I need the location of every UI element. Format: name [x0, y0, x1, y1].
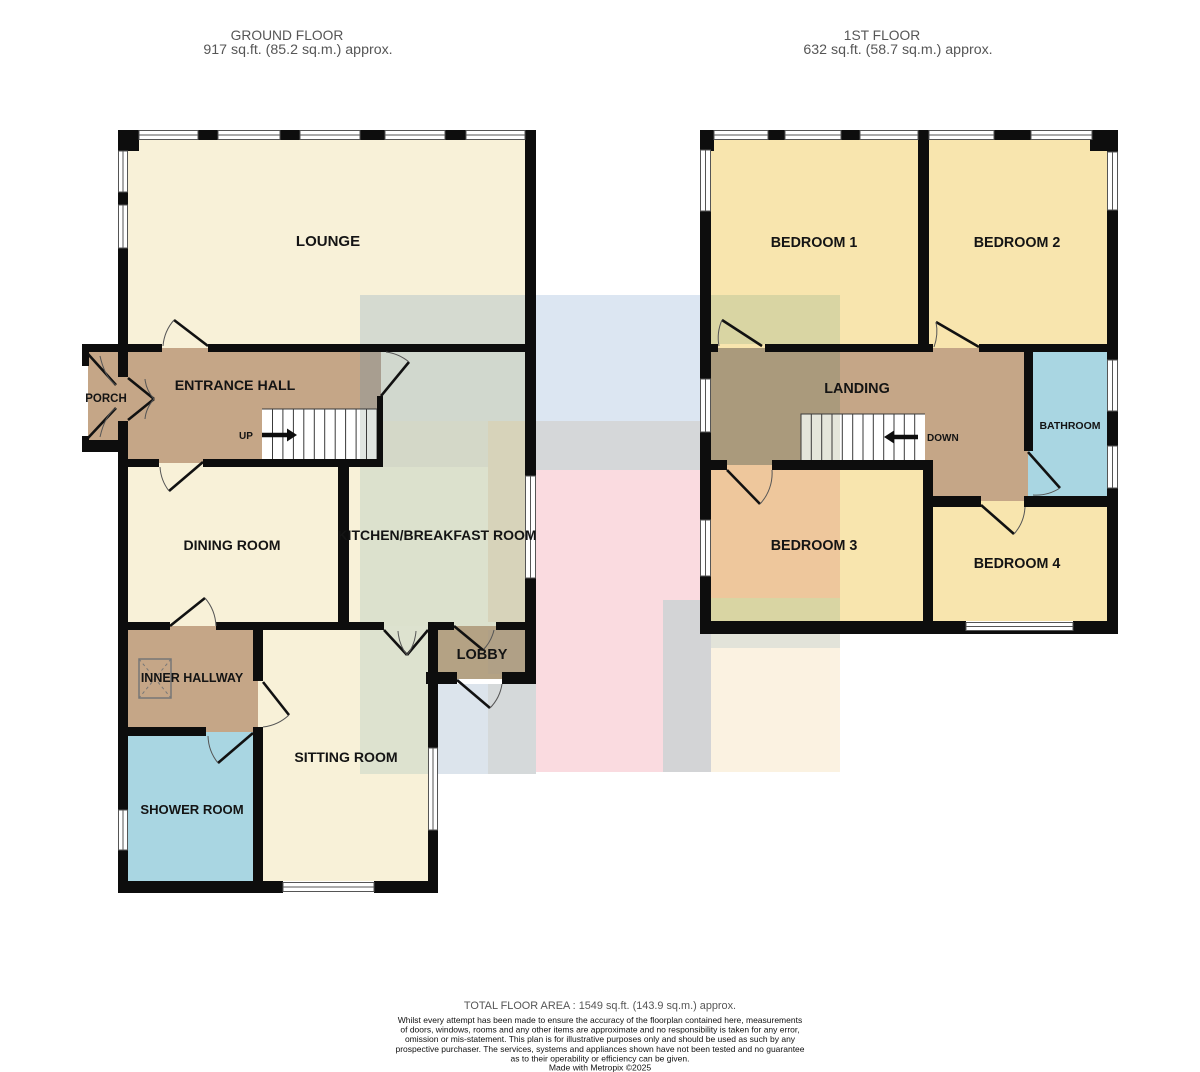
svg-text:BATHROOM: BATHROOM — [1039, 420, 1100, 432]
svg-text:INNER HALLWAY: INNER HALLWAY — [141, 671, 244, 685]
svg-text:omission or mis-statement. Thi: omission or mis-statement. This plan is … — [405, 1034, 796, 1044]
svg-text:LANDING: LANDING — [824, 381, 890, 397]
svg-text:UP: UP — [239, 431, 253, 442]
svg-text:of doors, windows, rooms and a: of doors, windows, rooms and any other i… — [400, 1025, 799, 1035]
svg-text:LOBBY: LOBBY — [457, 647, 508, 663]
svg-text:BEDROOM 4: BEDROOM 4 — [974, 556, 1061, 572]
svg-text:917 sq.ft. (85.2 sq.m.) approx: 917 sq.ft. (85.2 sq.m.) approx. — [203, 42, 392, 58]
svg-text:Made with Metropix ©2025: Made with Metropix ©2025 — [549, 1063, 652, 1072]
svg-text:GROUND FLOOR: GROUND FLOOR — [231, 28, 344, 43]
svg-text:TOTAL FLOOR AREA : 1549 sq.ft.: TOTAL FLOOR AREA : 1549 sq.ft. (143.9 sq… — [464, 1000, 736, 1012]
svg-text:DOWN: DOWN — [927, 433, 959, 444]
svg-text:ENTRANCE HALL: ENTRANCE HALL — [175, 378, 296, 394]
svg-text:BEDROOM 3: BEDROOM 3 — [771, 538, 858, 554]
svg-text:DINING ROOM: DINING ROOM — [183, 537, 280, 553]
svg-text:Whilst every attempt has been: Whilst every attempt has been made to en… — [398, 1015, 802, 1025]
svg-text:632 sq.ft. (58.7 sq.m.) approx: 632 sq.ft. (58.7 sq.m.) approx. — [803, 42, 992, 58]
svg-text:BEDROOM 1: BEDROOM 1 — [771, 235, 858, 251]
svg-text:SHOWER ROOM: SHOWER ROOM — [140, 802, 243, 817]
svg-text:BEDROOM 2: BEDROOM 2 — [974, 235, 1061, 251]
svg-text:LOUNGE: LOUNGE — [296, 233, 360, 250]
svg-text:1ST FLOOR: 1ST FLOOR — [844, 28, 920, 43]
svg-text:SITTING ROOM: SITTING ROOM — [294, 749, 397, 765]
svg-text:PORCH: PORCH — [85, 393, 127, 405]
svg-text:KITCHEN/BREAKFAST ROOM: KITCHEN/BREAKFAST ROOM — [337, 527, 536, 543]
svg-text:prospective purchaser. The ser: prospective purchaser. The services, sys… — [395, 1044, 804, 1054]
